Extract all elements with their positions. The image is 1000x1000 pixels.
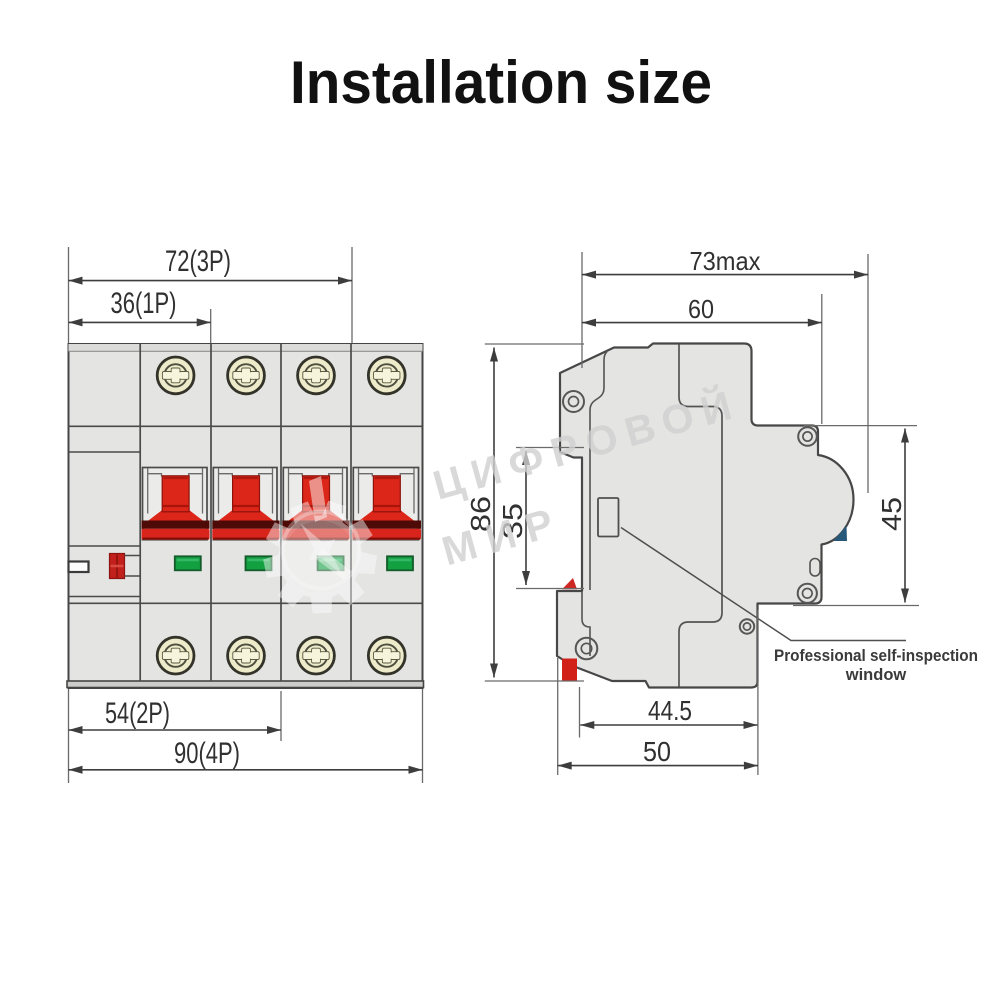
svg-text:44.5: 44.5 <box>648 695 692 726</box>
svg-text:45: 45 <box>876 497 907 531</box>
svg-text:window: window <box>845 666 907 684</box>
svg-text:54(2P): 54(2P) <box>105 697 170 730</box>
svg-text:72(3P): 72(3P) <box>165 245 231 278</box>
svg-text:60: 60 <box>688 294 714 324</box>
svg-text:36(1P): 36(1P) <box>111 287 177 320</box>
svg-text:73max: 73max <box>690 246 761 276</box>
svg-text:Professional self-inspection: Professional self-inspection <box>774 647 978 665</box>
svg-text:50: 50 <box>643 736 671 767</box>
svg-text:Installation size: Installation size <box>290 49 712 116</box>
svg-text:90(4P): 90(4P) <box>174 737 240 770</box>
